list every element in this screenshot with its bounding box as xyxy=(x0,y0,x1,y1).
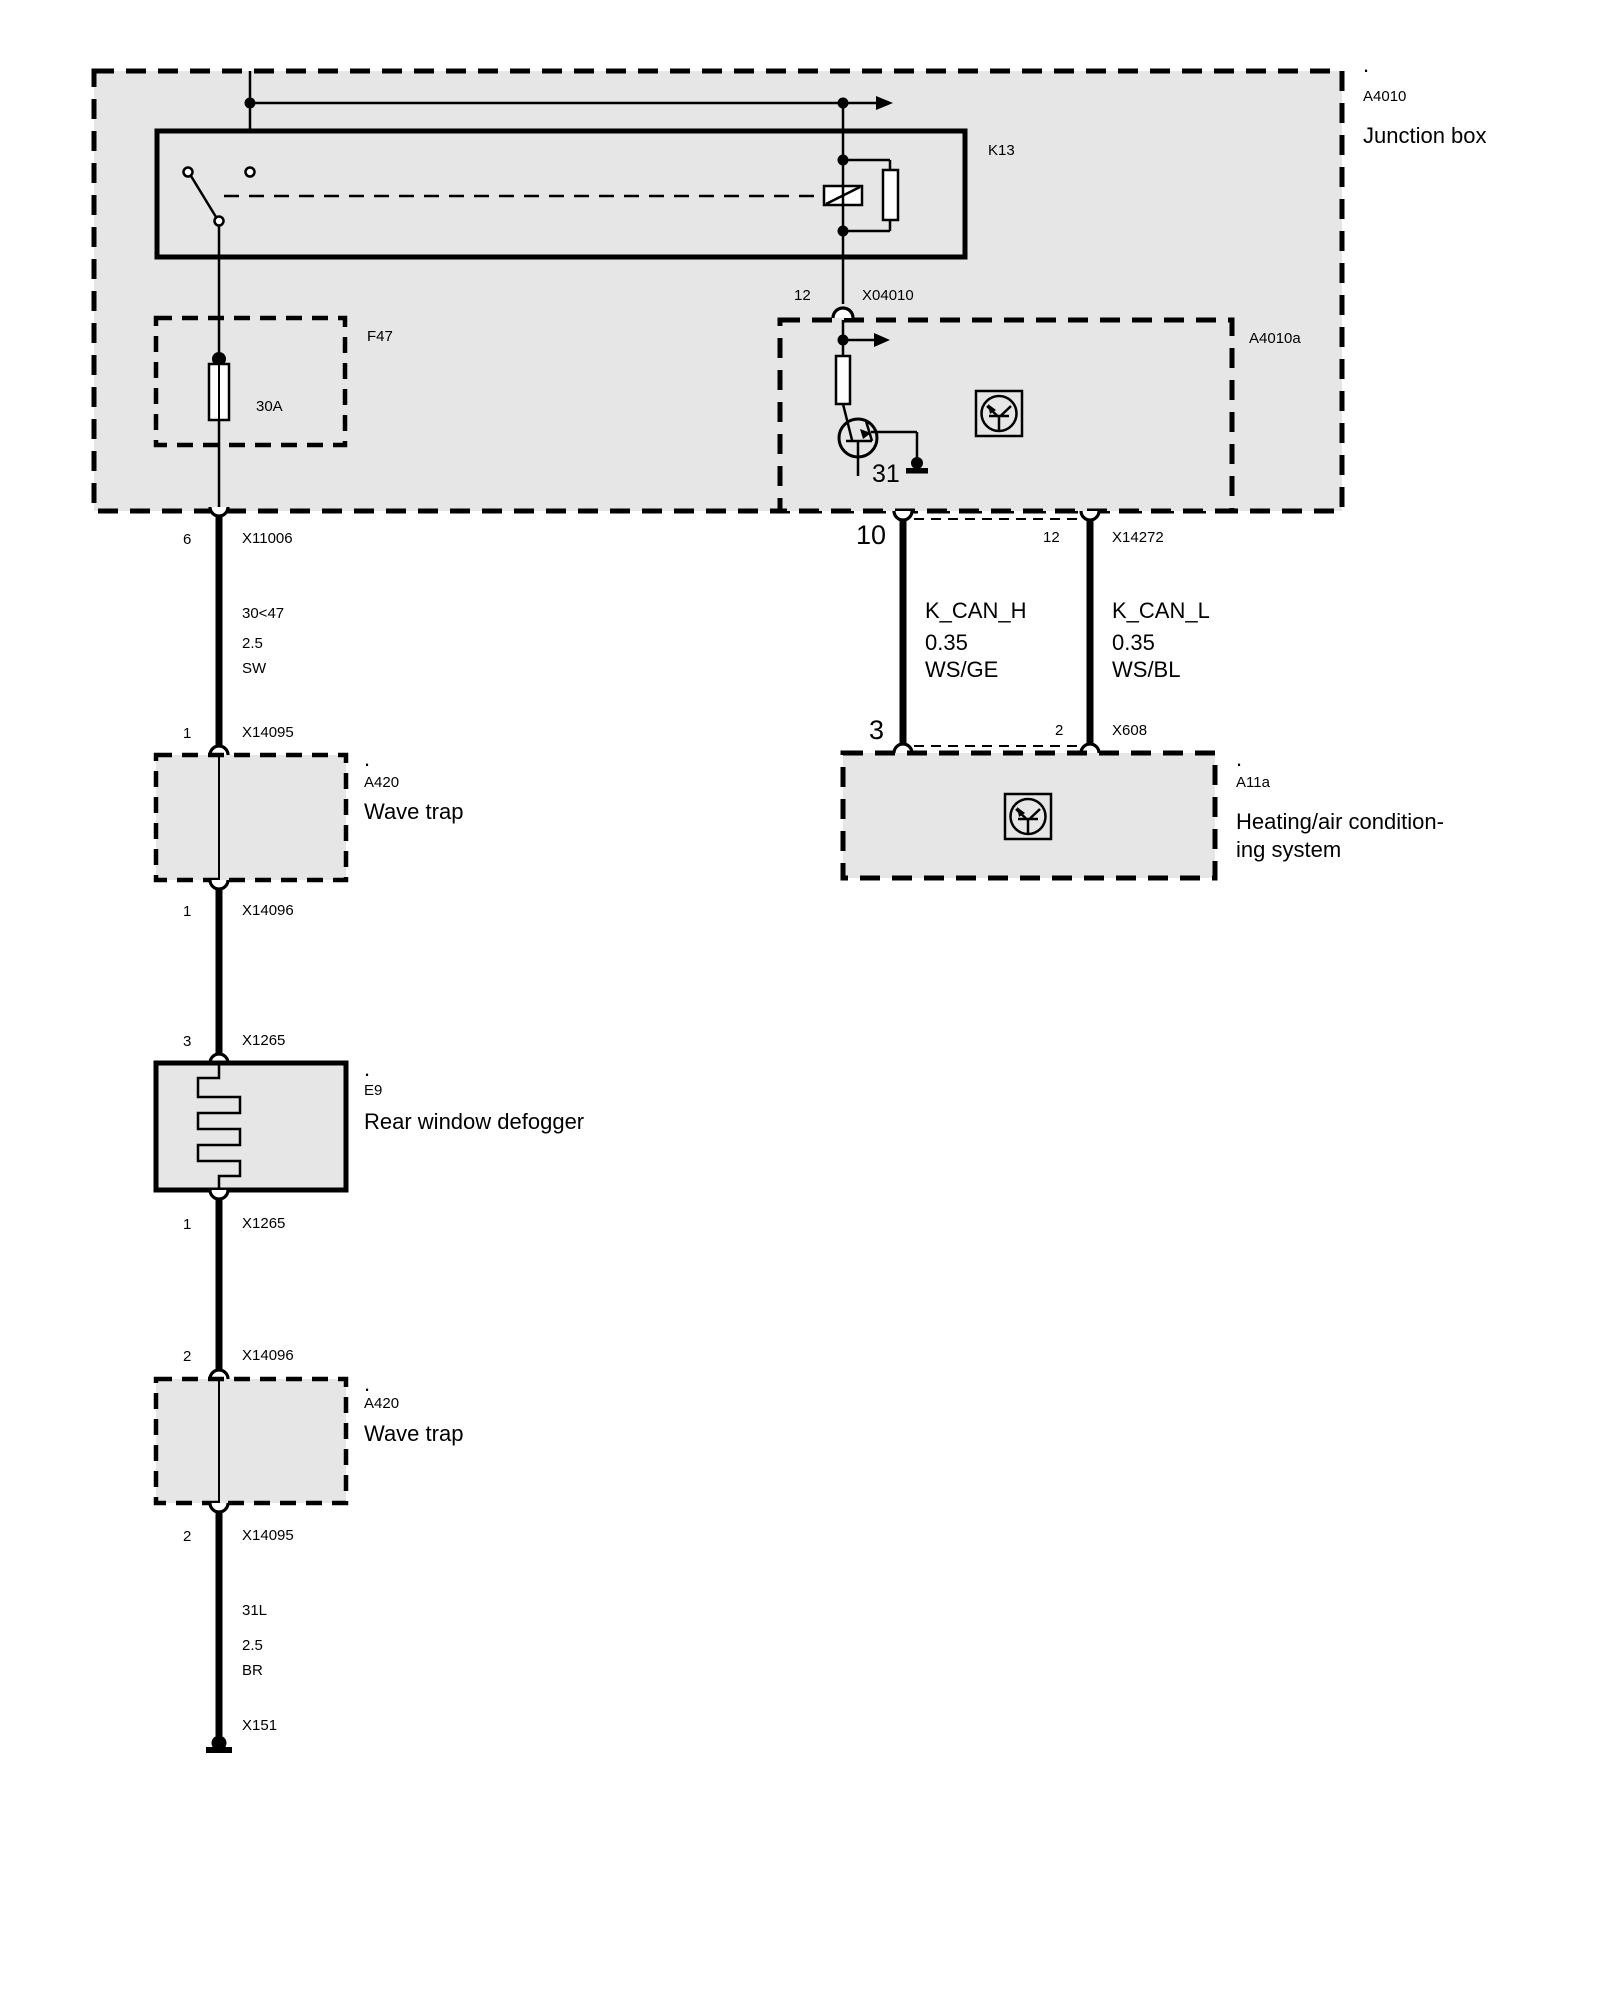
connector-ref: X14096 xyxy=(242,902,294,919)
connector-ref: X11006 xyxy=(242,530,293,547)
ground-connector-ref: X151 xyxy=(242,1717,277,1734)
defogger-marker: . xyxy=(364,1056,370,1081)
module-a4010a: A4010a xyxy=(780,320,1301,511)
wave-trap-1-outline xyxy=(156,755,346,880)
fuse-f47-ref: F47 xyxy=(367,328,393,345)
connector-x14272-ref: X14272 xyxy=(1112,529,1164,546)
wire-circuit: 31L xyxy=(242,1602,267,1619)
defogger-circuit: 6 X11006 30<47 2.5 SW 1 X14095 . A420 Wa… xyxy=(156,507,584,1753)
connector-ref: X14095 xyxy=(242,1527,294,1544)
wave-trap-2-marker: . xyxy=(364,1371,370,1396)
wire-gauge: 2.5 xyxy=(242,635,263,652)
wave-trap-2-ref: A420 xyxy=(364,1395,399,1412)
ground-terminal-label: 31 xyxy=(872,460,900,488)
k-can-l-gauge: 0.35 xyxy=(1112,630,1155,655)
bus-junction-dot xyxy=(245,98,256,109)
pin-number: 2 xyxy=(183,1528,191,1545)
defogger-e9: . E9 Rear window defogger xyxy=(156,1054,584,1199)
k-can-h-gauge: 0.35 xyxy=(925,630,968,655)
connector-x04010-ref: X04010 xyxy=(862,287,914,304)
junction-box-ref: A4010 xyxy=(1363,88,1406,105)
can-pin-12: 12 xyxy=(1043,529,1060,546)
pin-number: 3 xyxy=(183,1033,191,1050)
connector-ref: X14096 xyxy=(242,1347,294,1364)
wave-trap-1-marker: . xyxy=(364,746,370,771)
connector-ref: X1265 xyxy=(242,1032,285,1049)
module-a4010a-ref: A4010a xyxy=(1249,330,1301,347)
hvac-title-line2: ing system xyxy=(1236,837,1341,862)
defogger-title: Rear window defogger xyxy=(364,1109,584,1134)
pin-number: 1 xyxy=(183,1216,191,1233)
relay-k13-ref: K13 xyxy=(988,142,1015,159)
defogger-ref: E9 xyxy=(364,1082,382,1099)
wave-trap-1-ref: A420 xyxy=(364,774,399,791)
pin-number: 1 xyxy=(183,903,191,920)
fuse-rating: 30A xyxy=(256,398,283,415)
can-pin-3: 3 xyxy=(869,715,884,745)
k-can-l-color: WS/BL xyxy=(1112,657,1180,682)
connector-socket-icon xyxy=(210,1503,228,1512)
hvac-marker: . xyxy=(1236,746,1242,771)
wire-circuit: 30<47 xyxy=(242,605,284,622)
junction-box-title: Junction box xyxy=(1363,123,1487,148)
pin-number: 6 xyxy=(183,531,191,548)
wire-color: BR xyxy=(242,1662,263,1679)
wiring-diagram-page: . A4010 Junction box A4010a K13 xyxy=(0,0,1600,2000)
connector-ref: X1265 xyxy=(242,1215,285,1232)
module-resistor xyxy=(836,356,850,404)
connector-socket-icon xyxy=(894,511,912,520)
pin-number: 2 xyxy=(183,1348,191,1365)
ground-point-icon xyxy=(206,1736,232,1754)
relay-resistor xyxy=(883,170,898,220)
hvac-outline xyxy=(843,753,1215,878)
connector-x04010-pin: 12 xyxy=(794,287,811,304)
hvac-module-a11a: . A11a Heating/air condition- ing system xyxy=(843,746,1444,878)
connector-socket-icon xyxy=(210,507,228,516)
defogger-e9-outline xyxy=(156,1063,346,1190)
wave-trap-1-title: Wave trap xyxy=(364,799,463,824)
k-can-h-signal: K_CAN_H xyxy=(925,598,1026,623)
can-pin-10: 10 xyxy=(856,520,886,550)
connector-x608-ref: X608 xyxy=(1112,722,1147,739)
wave-trap-1: . A420 Wave trap xyxy=(156,746,463,889)
hvac-ref: A11a xyxy=(1236,774,1271,791)
can-pin-2: 2 xyxy=(1055,722,1063,739)
can-bus: 10 12 X14272 K_CAN_H 0.35 WS/GE K_CAN_L … xyxy=(856,511,1210,753)
wave-trap-2-outline xyxy=(156,1379,346,1503)
wave-trap-2-title: Wave trap xyxy=(364,1421,463,1446)
connector-socket-icon xyxy=(833,308,853,318)
connector-socket-icon xyxy=(210,880,228,889)
hvac-title-line1: Heating/air condition- xyxy=(1236,809,1444,834)
wave-trap-2: . A420 Wave trap xyxy=(156,1370,463,1512)
wire-gauge: 2.5 xyxy=(242,1637,263,1654)
junction-box-marker: . xyxy=(1363,52,1369,77)
k-can-l-signal: K_CAN_L xyxy=(1112,598,1210,623)
wire-color: SW xyxy=(242,660,267,677)
connector-ref: X14095 xyxy=(242,724,294,741)
wiring-diagram: . A4010 Junction box A4010a K13 xyxy=(0,0,1600,2000)
connector-socket-icon xyxy=(1081,511,1099,520)
k-can-h-color: WS/GE xyxy=(925,657,998,682)
connector-socket-icon xyxy=(210,1190,228,1199)
pin-number: 1 xyxy=(183,725,191,742)
